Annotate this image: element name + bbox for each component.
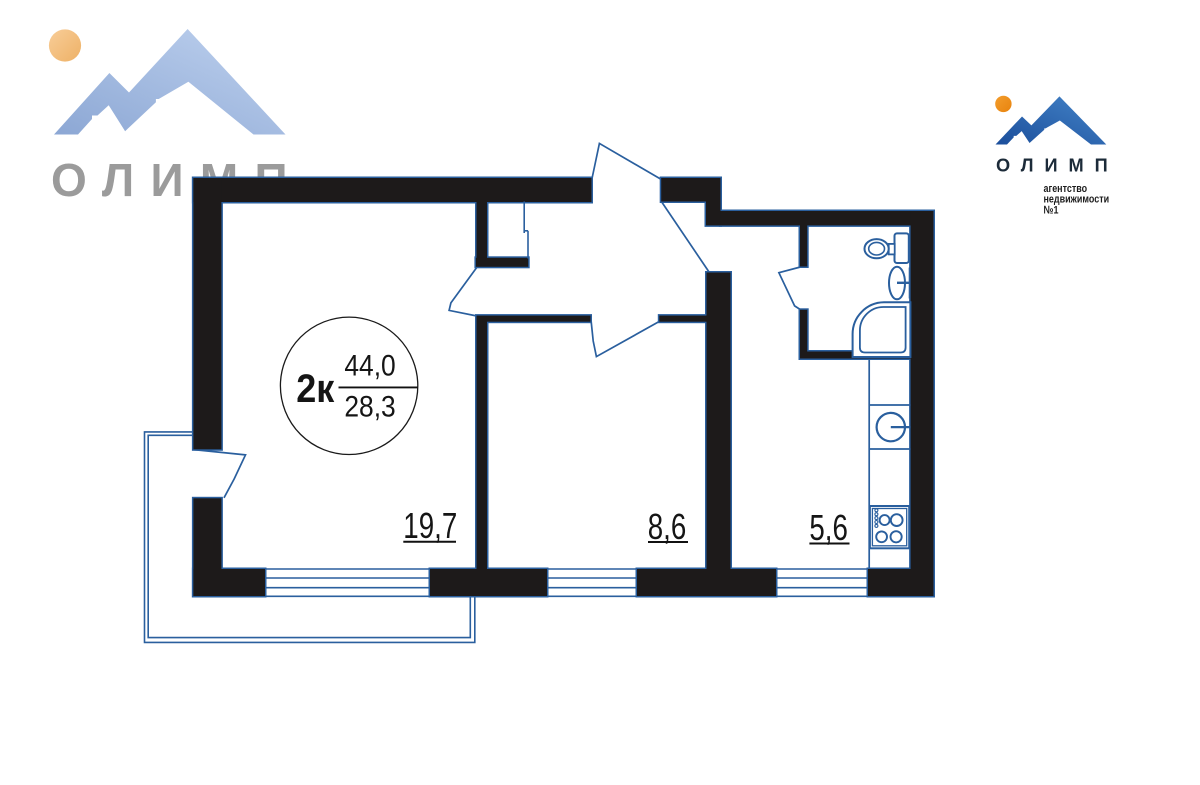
svg-text:№1: №1 <box>1044 204 1059 216</box>
svg-text:8,6: 8,6 <box>648 507 687 547</box>
svg-text:28,3: 28,3 <box>344 389 395 423</box>
svg-text:5,6: 5,6 <box>809 508 848 548</box>
svg-text:44,0: 44,0 <box>344 348 395 382</box>
svg-text:19,7: 19,7 <box>403 506 457 546</box>
svg-text:ОЛИМП: ОЛИМП <box>996 156 1119 176</box>
svg-text:2к: 2к <box>296 367 335 411</box>
